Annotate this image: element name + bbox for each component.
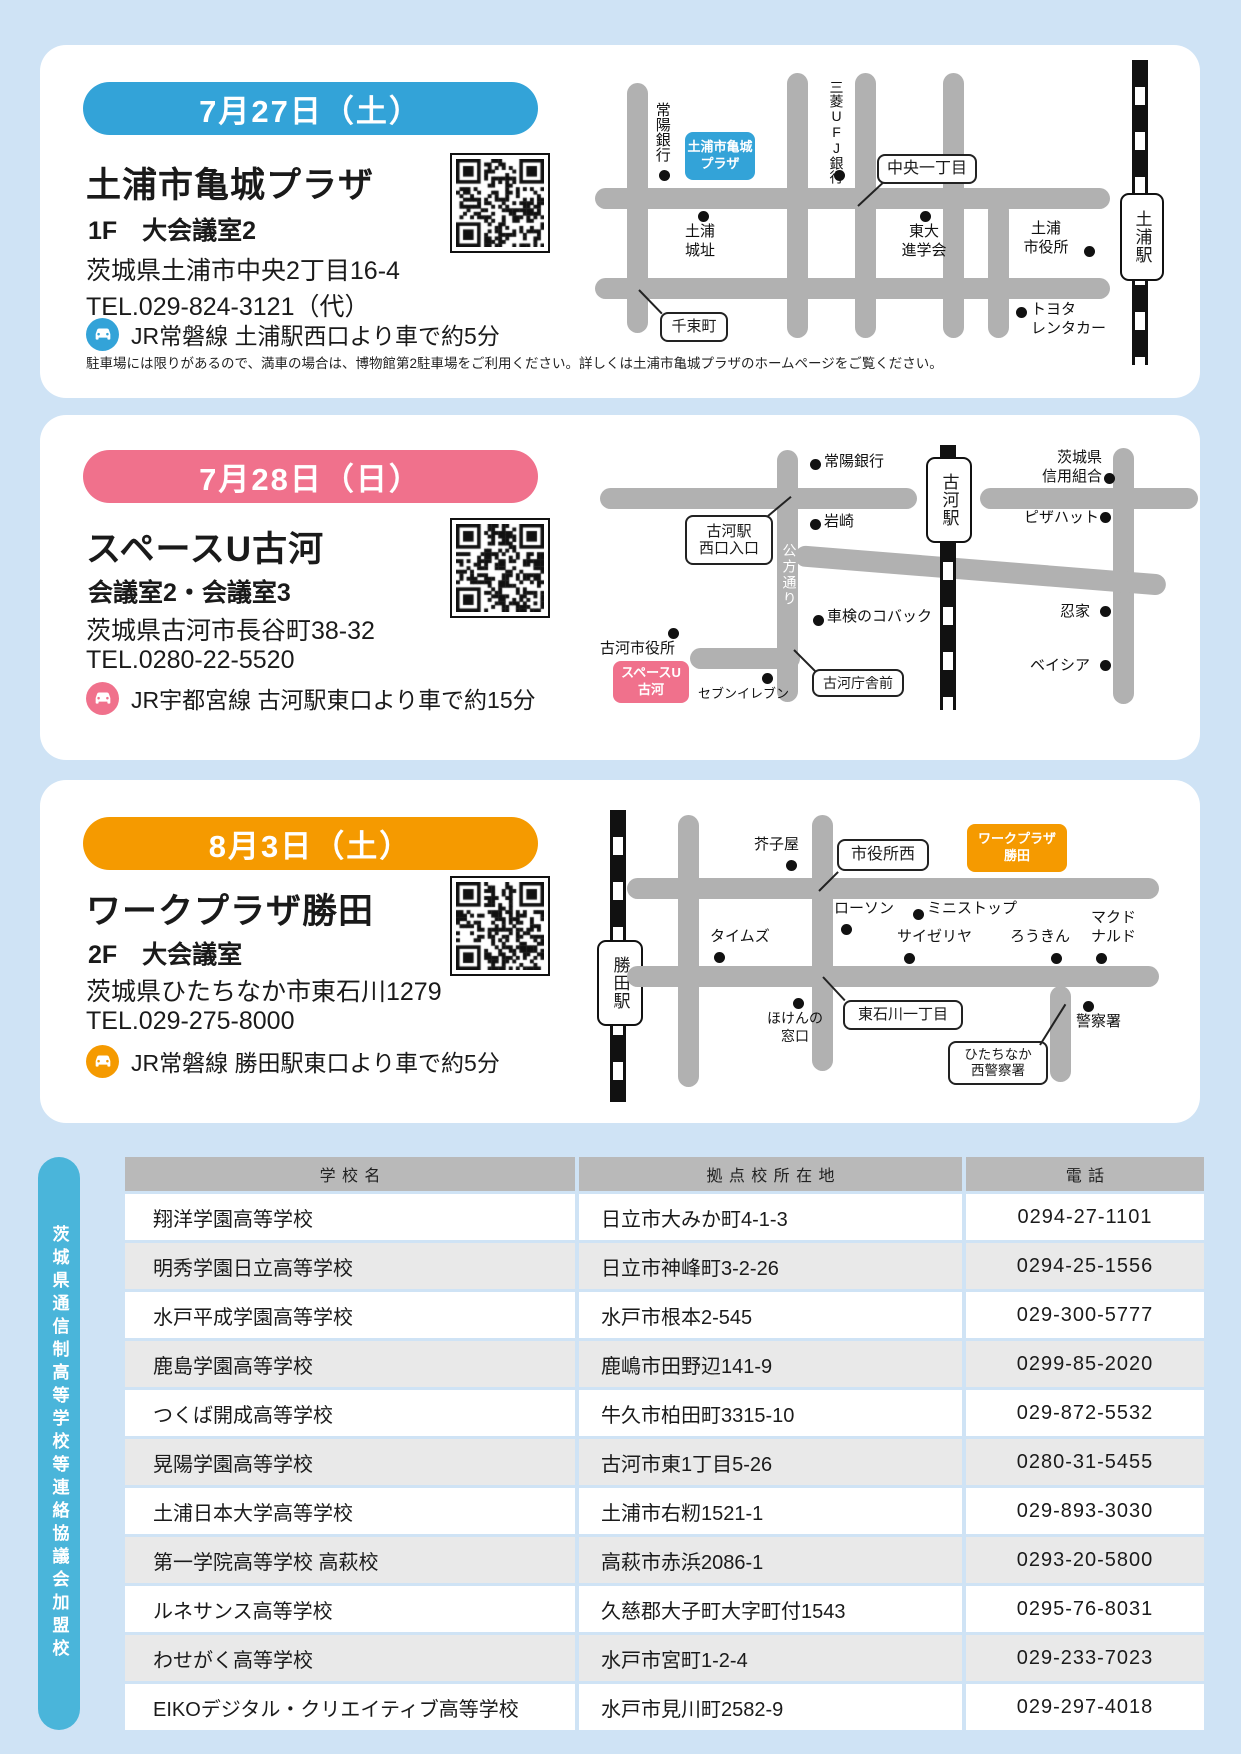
school-name: EIKOデジタル・クリエイティブ高等学校 xyxy=(125,1684,575,1730)
date-text: 7月28日（日） xyxy=(199,454,422,499)
school-phone: 0293-20-5800 xyxy=(966,1537,1204,1583)
venue-name: スペースU古河 xyxy=(86,521,324,572)
venue-address: 茨城県ひたちなか市東石川1279 xyxy=(86,972,442,1008)
school-address: 水戸市根本2-545 xyxy=(579,1292,962,1338)
map-dot xyxy=(841,924,852,935)
venue-name: 土浦市亀城プラザ xyxy=(86,157,374,208)
map-label-koga-shiyakusho: 古河市役所 xyxy=(600,640,675,659)
map-box-nishi-keisatsu: ひたちなか 西警察署 xyxy=(948,1041,1048,1085)
map-dot xyxy=(1096,953,1107,964)
side-label-capsule: 茨城県通信制高等学校等連絡協議会加盟校 xyxy=(38,1157,80,1730)
school-name: つくば開成高等学校 xyxy=(125,1390,575,1436)
table-row: EIKOデジタル・クリエイティブ高等学校水戸市見川町2582-9029-297-… xyxy=(125,1684,1204,1730)
school-address: 日立市神峰町3-2-26 xyxy=(579,1243,962,1289)
header-school-phone: 電話 xyxy=(966,1157,1204,1191)
map-dot xyxy=(1084,246,1095,257)
map-dot xyxy=(904,953,915,964)
map-label-hoken-madoguchi: ほけんの 窓口 xyxy=(762,1010,828,1045)
road xyxy=(595,278,1110,299)
map-label-keisatsusho: 警察署 xyxy=(1076,1013,1121,1032)
school-address: 高萩市赤浜2086-1 xyxy=(579,1537,962,1583)
map-dot xyxy=(1051,953,1062,964)
side-label-text: 茨城県通信制高等学校等連絡協議会加盟校 xyxy=(47,1225,72,1662)
table-row: 第一学院高等学校 高萩校高萩市赤浜2086-10293-20-5800 xyxy=(125,1537,1204,1583)
table-body: 翔洋学園高等学校日立市大みか町4-1-30294-27-1101明秀学園日立高等… xyxy=(125,1194,1204,1730)
table-row: 明秀学園日立高等学校日立市神峰町3-2-260294-25-1556 xyxy=(125,1243,1204,1289)
map-label-joshi: 土浦 城址 xyxy=(670,223,730,261)
school-name: 土浦日本大学高等学校 xyxy=(125,1488,575,1534)
school-table: 学校名 拠点校所在地 電話 翔洋学園高等学校日立市大みか町4-1-30294-2… xyxy=(125,1157,1204,1733)
map-dot xyxy=(1083,1001,1094,1012)
school-phone: 0299-85-2020 xyxy=(966,1341,1204,1387)
venue-tel: TEL.0280-22-5520 xyxy=(86,646,294,675)
map-dot xyxy=(793,998,804,1009)
map-koga: 古河駅 常陽銀行 岩崎 古河駅 西口入口 公方通り 車検のコバック 古河市役所 … xyxy=(540,445,1200,710)
map-label-karashiya: 芥子屋 xyxy=(754,836,799,855)
map-label-mitsubishi-ufj: 三菱UFJ銀行 xyxy=(827,80,845,184)
road xyxy=(678,815,699,1087)
map-dot xyxy=(813,615,824,626)
date-text: 8月3日（土） xyxy=(209,821,412,866)
school-phone: 029-893-3030 xyxy=(966,1488,1204,1534)
venue-room: 会議室2・会議室3 xyxy=(88,573,291,609)
header-school-address: 拠点校所在地 xyxy=(579,1157,962,1191)
map-dot xyxy=(1016,307,1027,318)
event-card-katsuta: 8月3日（土） ワークプラザ勝田 2F 大会議室 茨城県ひたちなか市東石川127… xyxy=(40,780,1200,1123)
date-pill: 8月3日（土） xyxy=(83,817,538,870)
venue-address: 茨城県古河市長谷町38-32 xyxy=(86,611,375,647)
map-dot xyxy=(668,628,679,639)
road xyxy=(1050,986,1071,1082)
map-label-toyota: トヨタ レンタカー xyxy=(1031,301,1123,339)
qr-code xyxy=(450,518,550,618)
venue-map-box: 土浦市亀城 プラザ xyxy=(685,132,755,180)
flyer-page: 7月27日（土） 土浦市亀城プラザ 1F 大会議室2 茨城県土浦市中央2丁目16… xyxy=(0,0,1241,1754)
access-row: JR宇都宮線 古河駅東口より車で約15分 xyxy=(86,681,536,715)
map-dot xyxy=(810,459,821,470)
school-address: 日立市大みか町4-1-3 xyxy=(579,1194,962,1240)
map-dot xyxy=(1100,660,1111,671)
map-dot xyxy=(810,519,821,530)
venue-room: 1F 大会議室2 xyxy=(88,211,256,247)
table-row: 晃陽学園高等学校古河市東1丁目5-260280-31-5455 xyxy=(125,1439,1204,1485)
school-phone: 0294-27-1101 xyxy=(966,1194,1204,1240)
map-box-shiyakusho-nishi: 市役所西 xyxy=(837,839,929,871)
venue-address: 茨城県土浦市中央2丁目16-4 xyxy=(86,251,400,287)
map-dot xyxy=(762,673,773,684)
map-tsuchiura: 土浦駅 常陽銀行 土浦市亀城 プラザ 三菱UFJ銀行 中央一丁目 土浦 城址 東… xyxy=(540,60,1200,365)
station-label: 古河駅 xyxy=(926,457,972,543)
school-name: 鹿島学園高等学校 xyxy=(125,1341,575,1387)
map-label-seven-eleven: セブンイレブン xyxy=(698,686,789,702)
school-name: 明秀学園日立高等学校 xyxy=(125,1243,575,1289)
map-label-saizeriya: サイゼリヤ xyxy=(897,928,972,947)
venue-name: ワークプラザ勝田 xyxy=(86,883,374,934)
map-dot xyxy=(698,211,709,222)
school-name: 晃陽学園高等学校 xyxy=(125,1439,575,1485)
access-row: JR常磐線 土浦駅西口より車で約5分 xyxy=(86,317,500,351)
date-pill: 7月27日（土） xyxy=(83,82,538,135)
access-text: JR常磐線 勝田駅東口より車で約5分 xyxy=(131,1044,500,1078)
school-address: 水戸市宮町1-2-4 xyxy=(579,1635,962,1681)
school-address: 土浦市右籾1521-1 xyxy=(579,1488,962,1534)
school-address: 牛久市柏田町3315-10 xyxy=(579,1390,962,1436)
map-katsuta: 勝田駅 ワークプラザ 勝田 芥子屋 市役所西 ローソン ミニストップ サイゼリヤ… xyxy=(540,810,1200,1107)
school-address: 水戸市見川町2582-9 xyxy=(579,1684,962,1730)
map-label-pizza-hut: ピザハット xyxy=(1024,509,1099,528)
table-row: 土浦日本大学高等学校土浦市右籾1521-1029-893-3030 xyxy=(125,1488,1204,1534)
school-name: 水戸平成学園高等学校 xyxy=(125,1292,575,1338)
map-label-kubo-dori: 公方通り xyxy=(780,543,798,607)
date-text: 7月27日（土） xyxy=(199,86,422,131)
qr-code xyxy=(450,876,550,976)
table-row: 鹿島学園高等学校鹿嶋市田野辺141-90299-85-2020 xyxy=(125,1341,1204,1387)
road xyxy=(600,488,917,509)
map-box-chosha-mae: 古河庁舎前 xyxy=(812,669,904,697)
map-label-shinyo-kumiai: 茨城県 信用組合 xyxy=(1032,449,1102,487)
school-phone: 029-300-5777 xyxy=(966,1292,1204,1338)
map-dot xyxy=(659,170,670,181)
school-address: 鹿嶋市田野辺141-9 xyxy=(579,1341,962,1387)
map-label-lawson: ローソン xyxy=(834,900,894,919)
map-label-shinobiya: 忍家 xyxy=(1060,603,1090,622)
map-dot xyxy=(1100,512,1111,523)
school-phone: 029-872-5532 xyxy=(966,1390,1204,1436)
table-header-row: 学校名 拠点校所在地 電話 xyxy=(125,1157,1204,1191)
map-label-times: タイムズ xyxy=(710,928,770,947)
table-row: 翔洋学園高等学校日立市大みか町4-1-30294-27-1101 xyxy=(125,1194,1204,1240)
car-icon xyxy=(86,318,119,351)
road xyxy=(595,188,1110,209)
map-label-kobac: 車検のコバック xyxy=(827,608,932,627)
school-address: 古河市東1丁目5-26 xyxy=(579,1439,962,1485)
map-dot xyxy=(1100,606,1111,617)
map-label-joyo-bank: 常陽銀行 xyxy=(652,102,671,162)
road xyxy=(794,545,1166,596)
car-icon xyxy=(86,1045,119,1078)
access-text: JR常磐線 土浦駅西口より車で約5分 xyxy=(131,317,500,351)
map-dot xyxy=(920,211,931,222)
school-address: 久慈郡大子町大字町付1543 xyxy=(579,1586,962,1632)
map-label-todai: 東大 進学会 xyxy=(888,223,960,261)
table-row: 水戸平成学園高等学校水戸市根本2-545029-300-5777 xyxy=(125,1292,1204,1338)
map-label-shiyakusho: 土浦 市役所 xyxy=(1006,220,1086,258)
event-card-tsuchiura: 7月27日（土） 土浦市亀城プラザ 1F 大会議室2 茨城県土浦市中央2丁目16… xyxy=(40,45,1200,398)
school-phone: 0280-31-5455 xyxy=(966,1439,1204,1485)
car-icon xyxy=(86,682,119,715)
venue-map-box: ワークプラザ 勝田 xyxy=(967,824,1067,872)
school-name: わせがく高等学校 xyxy=(125,1635,575,1681)
access-text: JR宇都宮線 古河駅東口より車で約15分 xyxy=(131,681,536,715)
access-row: JR常磐線 勝田駅東口より車で約5分 xyxy=(86,1044,500,1078)
road xyxy=(690,648,800,669)
table-row: わせがく高等学校水戸市宮町1-2-4029-233-7023 xyxy=(125,1635,1204,1681)
school-name: 第一学院高等学校 高萩校 xyxy=(125,1537,575,1583)
map-dot xyxy=(786,860,797,871)
venue-tel: TEL.029-275-8000 xyxy=(86,1007,294,1036)
school-phone: 029-233-7023 xyxy=(966,1635,1204,1681)
qr-code xyxy=(450,153,550,253)
school-name: 翔洋学園高等学校 xyxy=(125,1194,575,1240)
station-label: 土浦駅 xyxy=(1120,193,1164,281)
map-dot xyxy=(913,909,924,920)
table-row: つくば開成高等学校牛久市柏田町3315-10029-872-5532 xyxy=(125,1390,1204,1436)
header-school-name: 学校名 xyxy=(125,1157,575,1191)
map-dot xyxy=(714,952,725,963)
school-phone: 029-297-4018 xyxy=(966,1684,1204,1730)
map-label-joyo-bank: 常陽銀行 xyxy=(824,453,884,472)
school-phone: 0294-25-1556 xyxy=(966,1243,1204,1289)
date-pill: 7月28日（日） xyxy=(83,450,538,503)
map-label-rokin: ろうきん xyxy=(1010,928,1070,947)
venue-room: 2F 大会議室 xyxy=(88,935,242,971)
venue-map-box: スペースU 古河 xyxy=(613,661,689,703)
map-label-mcdonalds: マクド ナルド xyxy=(1091,909,1136,947)
school-phone: 0295-76-8031 xyxy=(966,1586,1204,1632)
map-box-chuo-itchome: 中央一丁目 xyxy=(877,154,977,184)
table-row: ルネサンス高等学校久慈郡大子町大字町付15430295-76-8031 xyxy=(125,1586,1204,1632)
map-box-nishiguchi: 古河駅 西口入口 xyxy=(685,515,773,565)
map-dot xyxy=(834,170,845,181)
map-dot xyxy=(1104,473,1115,484)
map-label-ministop: ミニストップ xyxy=(927,900,1017,919)
road xyxy=(627,966,1159,987)
map-box-higashiishikawa: 東石川一丁目 xyxy=(843,1000,963,1030)
school-name: ルネサンス高等学校 xyxy=(125,1586,575,1632)
road xyxy=(627,878,1159,899)
map-box-senzoku: 千束町 xyxy=(660,312,728,342)
map-label-iwasaki: 岩崎 xyxy=(824,513,854,532)
map-label-beisia: ベイシア xyxy=(1030,657,1090,676)
road xyxy=(980,488,1198,509)
event-card-koga: 7月28日（日） スペースU古河 会議室2・会議室3 茨城県古河市長谷町38-3… xyxy=(40,415,1200,760)
